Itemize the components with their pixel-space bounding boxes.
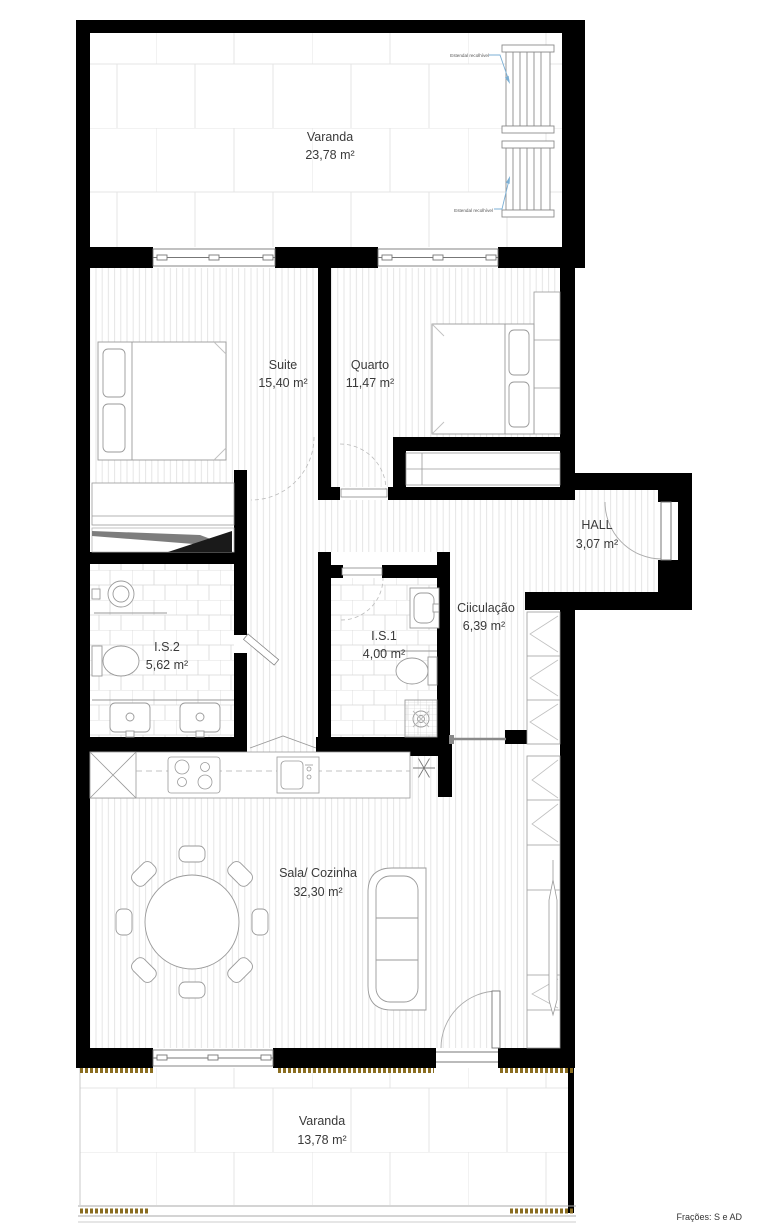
window xyxy=(153,249,275,266)
kitchen-sink xyxy=(277,757,319,793)
balcony-door-leaf xyxy=(492,991,500,1048)
svg-text:HALL: HALL xyxy=(581,518,612,532)
circulacao-wardrobe xyxy=(527,612,560,744)
sala-wardrobe xyxy=(527,756,560,1048)
svg-text:Sala/ Cozinha: Sala/ Cozinha xyxy=(279,866,357,880)
svg-text:32,30 m²: 32,30 m² xyxy=(293,885,342,899)
svg-text:5,62 m²: 5,62 m² xyxy=(146,658,188,672)
cooktop xyxy=(168,757,220,793)
floor-plan-drawing: Varanda 23,78 m² Suite 15,40 m² Quarto 1… xyxy=(0,0,768,1229)
quarto-wardrobe xyxy=(534,292,560,434)
svg-text:Ciiculação: Ciiculação xyxy=(457,601,515,615)
window xyxy=(378,249,498,266)
estendal-label-bottom: Estendal recolhível xyxy=(454,208,493,213)
svg-text:4,00 m²: 4,00 m² xyxy=(363,647,405,661)
quarto-closet xyxy=(406,453,560,485)
svg-text:Suite: Suite xyxy=(269,358,298,372)
is1-toilet xyxy=(396,657,437,685)
suite-closet xyxy=(92,483,234,552)
corridor-band-floor xyxy=(318,500,560,552)
quarto-door-leaf xyxy=(341,489,387,497)
svg-text:6,39 m²: 6,39 m² xyxy=(463,619,505,633)
quarto-bed xyxy=(432,324,534,434)
estendal-label-top: Estendal recolhível xyxy=(450,53,489,58)
svg-text:13,78 m²: 13,78 m² xyxy=(297,1133,346,1147)
is1-sink xyxy=(410,588,439,628)
corridor-floor xyxy=(247,483,318,756)
svg-text:11,47 m²: 11,47 m² xyxy=(346,376,394,390)
kitchen xyxy=(90,752,435,798)
floor-plan: Varanda 23,78 m² Suite 15,40 m² Quarto 1… xyxy=(0,0,768,1229)
svg-text:I.S.2: I.S.2 xyxy=(154,640,180,654)
suite-bed xyxy=(98,342,226,460)
svg-text:Varanda: Varanda xyxy=(307,130,353,144)
svg-text:Quarto: Quarto xyxy=(351,358,389,372)
balcony-door-opening xyxy=(436,1052,498,1062)
sliding-panel xyxy=(549,880,557,1015)
svg-text:I.S.1: I.S.1 xyxy=(371,629,397,643)
svg-text:3,07 m²: 3,07 m² xyxy=(576,537,618,551)
sofa xyxy=(368,868,426,1010)
svg-text:Varanda: Varanda xyxy=(299,1114,345,1128)
is2-toilet xyxy=(92,646,139,676)
window xyxy=(153,1050,273,1066)
is1-door-leaf xyxy=(342,568,382,575)
fridge-module xyxy=(90,752,136,798)
svg-text:23,78 m²: 23,78 m² xyxy=(305,148,354,162)
is1-shower xyxy=(405,700,437,737)
clothesline-rack xyxy=(502,45,554,133)
fractions-note: Frações: S e AD xyxy=(676,1212,742,1222)
kitchen-counter xyxy=(90,752,410,798)
svg-text:15,40 m²: 15,40 m² xyxy=(258,376,307,390)
entry-door-leaf xyxy=(661,502,671,560)
